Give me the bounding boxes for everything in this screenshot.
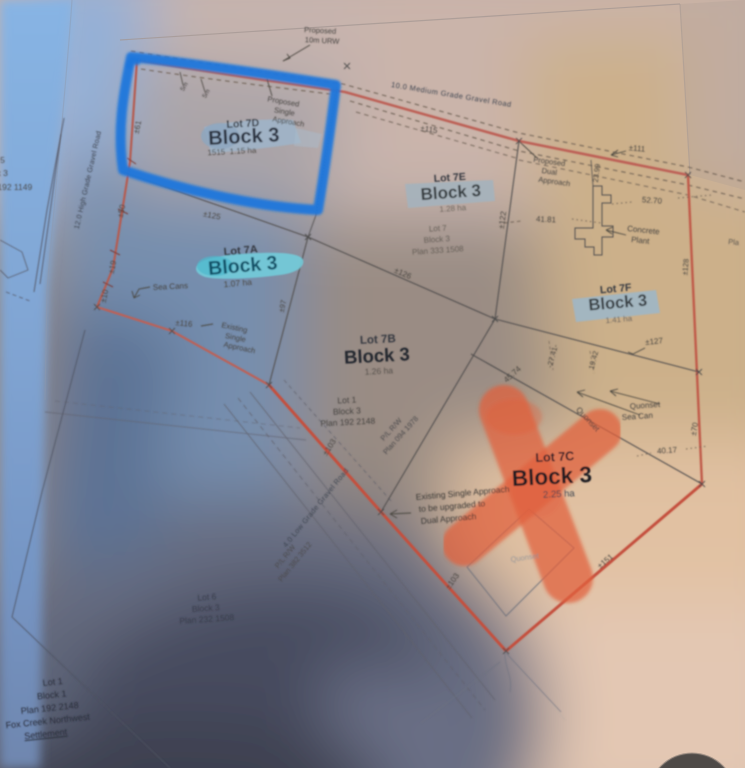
svg-text:2.25 ha: 2.25 ha bbox=[543, 488, 576, 501]
svg-text:Block 3: Block 3 bbox=[511, 462, 592, 491]
svg-text:Block 3: Block 3 bbox=[423, 234, 450, 245]
svg-text:Block 3: Block 3 bbox=[333, 405, 362, 416]
svg-text:Proposed: Proposed bbox=[304, 25, 337, 36]
svg-text:Lot 5: Lot 5 bbox=[0, 155, 5, 165]
svg-text:±111: ±111 bbox=[628, 143, 646, 153]
svg-text:40.17: 40.17 bbox=[657, 445, 678, 455]
svg-text:1.26 ha: 1.26 ha bbox=[364, 365, 393, 376]
svg-text:41.81: 41.81 bbox=[536, 214, 557, 224]
svg-text:Lot 7: Lot 7 bbox=[429, 223, 448, 233]
svg-text:Lot 6: Lot 6 bbox=[197, 591, 217, 602]
svg-text:Pla: Pla bbox=[728, 237, 741, 247]
svg-text:±127: ±127 bbox=[645, 336, 664, 347]
svg-text:52.70: 52.70 bbox=[642, 195, 663, 205]
svg-text:Lot 1: Lot 1 bbox=[42, 676, 63, 688]
svg-text:Block 3: Block 3 bbox=[343, 343, 410, 367]
svg-text:±128: ±128 bbox=[680, 258, 690, 275]
svg-text:10m URW: 10m URW bbox=[305, 35, 341, 46]
svg-text:±116: ±116 bbox=[175, 318, 194, 329]
svg-text:1.28 ha: 1.28 ha bbox=[439, 203, 467, 214]
svg-text:Block 3: Block 3 bbox=[192, 602, 221, 614]
svg-text:Block 3: Block 3 bbox=[0, 168, 8, 178]
svg-text:Lot 1: Lot 1 bbox=[337, 395, 357, 406]
svg-text:Sea Cans: Sea Cans bbox=[153, 281, 189, 292]
svg-text:Plan 192 1149: Plan 192 1149 bbox=[0, 182, 32, 192]
